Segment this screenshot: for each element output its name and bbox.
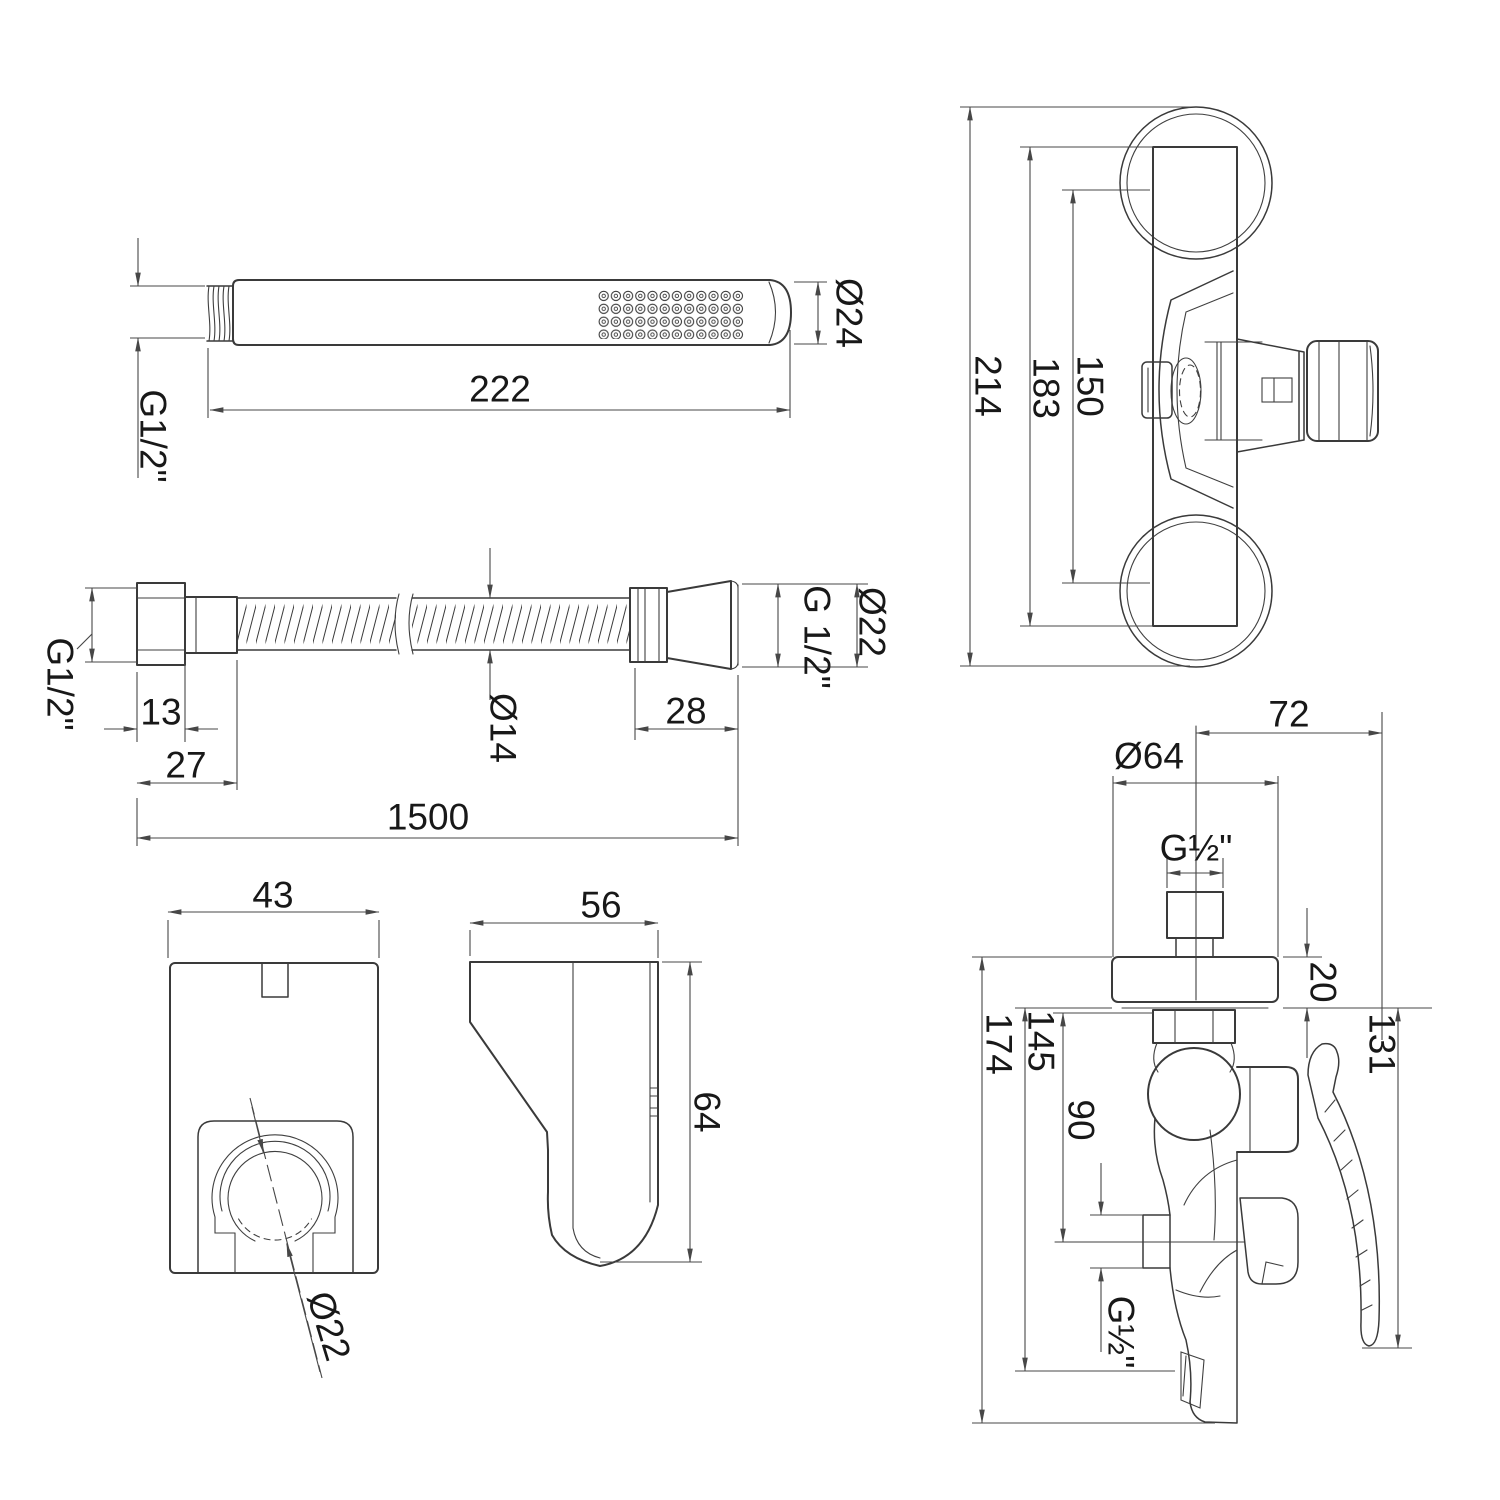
hose-corrugated-tube xyxy=(237,594,630,654)
hose-ferrule-left xyxy=(185,597,237,653)
dim-holder-width: 43 xyxy=(252,875,293,916)
spray-nozzle-grid xyxy=(598,290,744,339)
dim-flange-thickness: 20 xyxy=(1303,961,1344,1002)
dim-hose-fitting-right: 28 xyxy=(665,691,706,732)
wall-flange xyxy=(1112,957,1278,1008)
hose-cone-fitting-right xyxy=(630,581,738,669)
shower-hose-view: G1/2" 13 27 Ø14 28 1500 G 1/2" Ø22 xyxy=(40,548,893,846)
dim-mixer-to-bottom: 145 xyxy=(1021,1010,1062,1072)
technical-drawing-sheet: G1/2" 222 Ø24 xyxy=(0,0,1500,1500)
hand-shower-view: G1/2" 222 Ø24 xyxy=(130,238,870,483)
dim-holder-opening-diameter: Ø22 xyxy=(299,1287,359,1366)
mixer-lever xyxy=(1308,1044,1379,1346)
dim-mixer-overall-height: 174 xyxy=(979,1013,1020,1075)
dim-hand-shower-diameter: Ø24 xyxy=(829,278,870,348)
dim-mixer-top-overall: 214 xyxy=(968,355,1009,417)
mixer-top-view: 214 183 150 xyxy=(960,107,1378,667)
mixer-body-top-view xyxy=(1153,147,1237,626)
dim-hand-shower-length: 222 xyxy=(469,369,531,410)
hand-shower-thread xyxy=(207,286,233,341)
dim-hose-inner-diameter: Ø14 xyxy=(483,693,524,763)
dim-mixer-reach: 72 xyxy=(1268,694,1309,735)
dim-holder-height: 64 xyxy=(687,1091,728,1132)
dim-hose-thread-right: G 1/2" xyxy=(797,585,838,689)
holder-side-body xyxy=(470,962,658,1266)
hand-shower-endcap xyxy=(769,282,776,343)
dim-inlet-thread: G½" xyxy=(1160,828,1233,869)
inlet-nipple xyxy=(1167,892,1223,957)
dim-hose-nut: 13 xyxy=(140,692,181,733)
diverter-housing xyxy=(1240,1198,1298,1284)
dim-mixer-top-mounts: 150 xyxy=(1070,355,1111,417)
dim-holder-depth: 56 xyxy=(580,885,621,926)
mixer-spout-top-view xyxy=(1142,271,1378,508)
holder-side-view: 56 64 xyxy=(470,885,728,1267)
dim-flange-diameter: Ø64 xyxy=(1114,736,1184,777)
suction-cup-top xyxy=(1120,107,1272,259)
suction-cup-bottom xyxy=(1120,515,1272,667)
dim-mixer-to-outlet: 90 xyxy=(1061,1099,1102,1140)
dim-outlet-thread: G½" xyxy=(1101,1296,1142,1369)
holder-front-view: Ø22 43 xyxy=(168,875,379,1379)
drawing-svg: G1/2" 222 Ø24 xyxy=(0,0,1500,1500)
dim-hand-shower-thread: G1/2" xyxy=(133,389,174,482)
dim-hose-fitting-left: 27 xyxy=(165,745,206,786)
mixer-side-view: 72 Ø64 G½" xyxy=(972,694,1432,1424)
dim-hose-length: 1500 xyxy=(387,797,469,838)
dim-mixer-top-body: 183 xyxy=(1026,357,1067,419)
hose-nut-left xyxy=(137,583,185,665)
dim-hose-thread-left: G1/2" xyxy=(40,637,81,730)
holder-front-body xyxy=(170,963,378,1273)
mixer-body-side xyxy=(1055,1010,1298,1423)
dim-hose-outer-diameter: Ø22 xyxy=(852,587,893,657)
dim-lever-length: 131 xyxy=(1362,1013,1403,1075)
